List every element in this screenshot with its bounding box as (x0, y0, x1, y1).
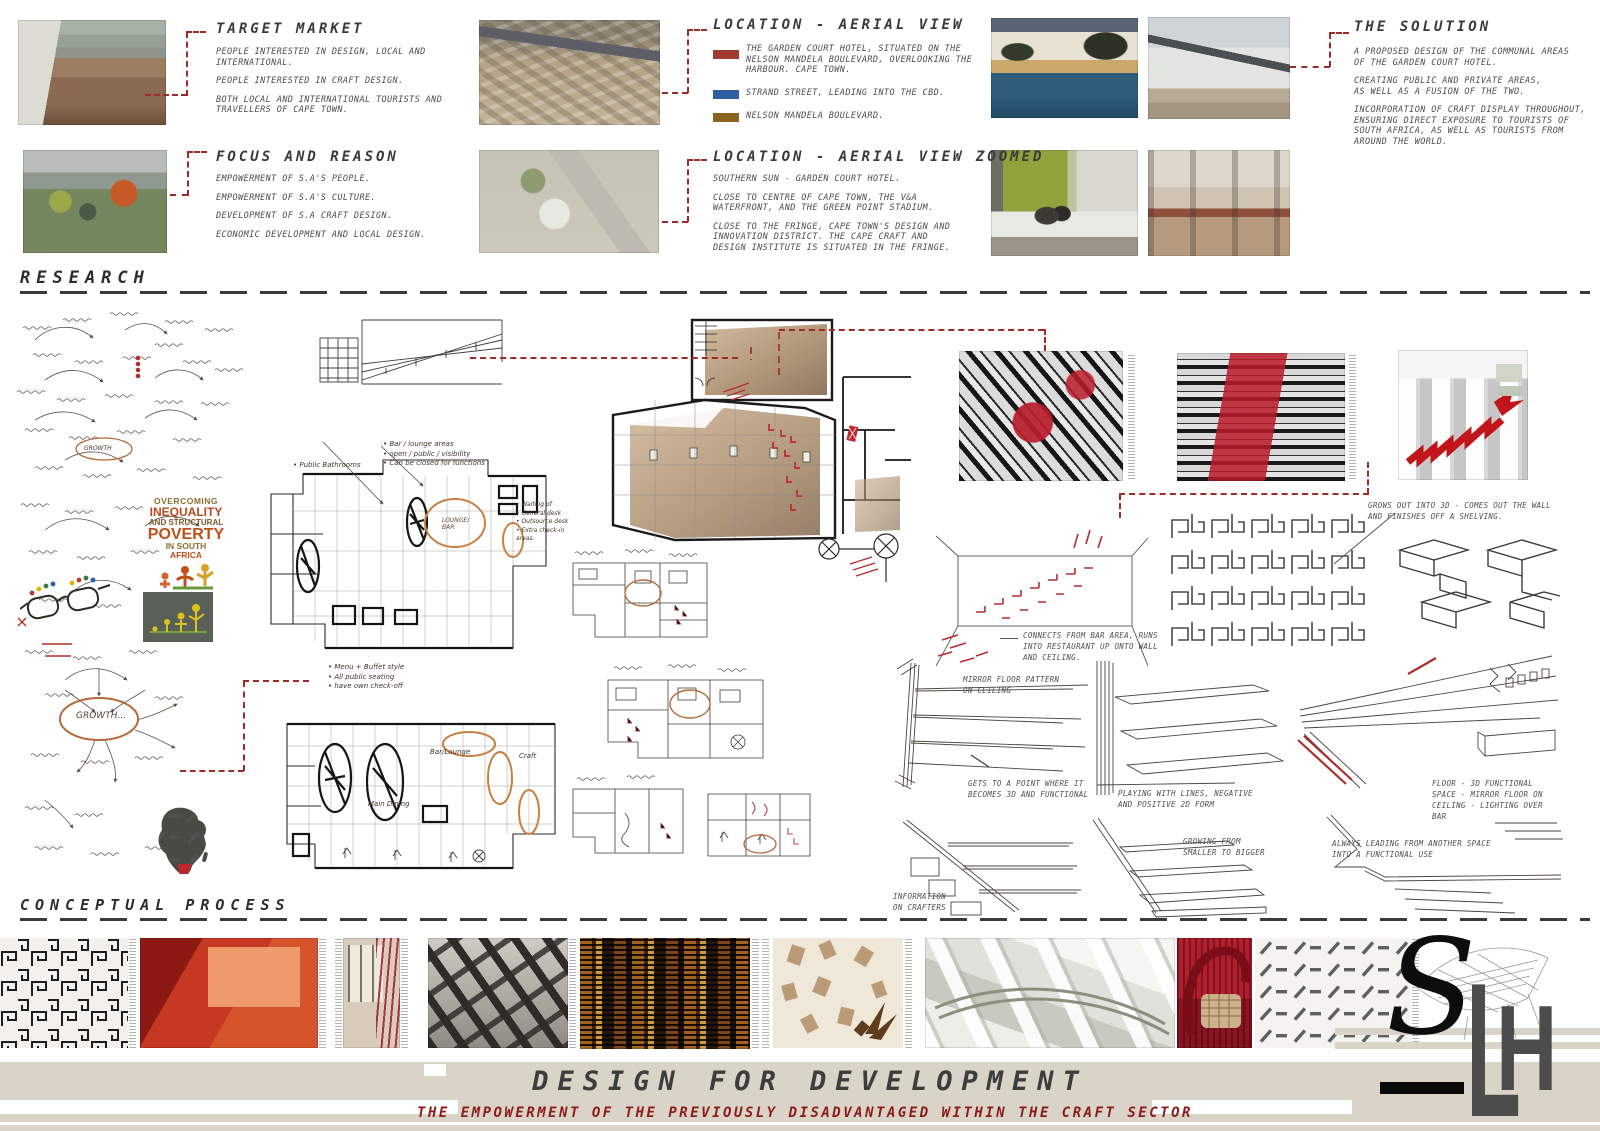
growth-bubble-small: GROWTH (84, 444, 112, 454)
presentation-board: TARGET MARKET PEOPLE INTERESTED IN DESIG… (0, 0, 1600, 1131)
label-lounge-bar: LOUNGE/BAR (442, 517, 469, 531)
poster-line6: AFRICA (136, 551, 236, 560)
note-menu-buffet: • Menu + Buffet style• All public seatin… (328, 663, 404, 692)
sketch-always-leading (1265, 815, 1565, 920)
connector-dash (1044, 329, 1046, 351)
connector-dash (180, 770, 244, 772)
connector-dash (687, 30, 689, 93)
connector-dash (1367, 462, 1369, 494)
legend-swatch-boulevard (713, 113, 739, 122)
board-title: DESIGN FOR DEVELOPMENT (430, 1068, 1190, 1095)
target-market-title: TARGET MARKET (216, 22, 365, 36)
floor-plan-sketch-2 (273, 686, 571, 878)
sketch-growing (1078, 815, 1268, 920)
connector-dash (1119, 494, 1121, 518)
photo-aloe-crafters (23, 150, 167, 253)
strip-wood-texture (580, 938, 750, 1049)
legend-text-hotel: THE GARDEN COURT HOTEL, SITUATED ON THEN… (746, 44, 972, 76)
focus-reason-text: EMPOWERMENT OF S.A'S PEOPLE.EMPOWERMENT … (216, 174, 426, 240)
connector-dash (687, 29, 707, 31)
note-growing: GROWING FROMSMALLER TO BIGGER (1183, 836, 1265, 858)
note-info-crafters: INFORMATIONON CRAFTERS (893, 891, 946, 913)
connector-dash (687, 160, 689, 222)
solution-title: THE SOLUTION (1354, 20, 1491, 34)
connector-dash (186, 32, 188, 96)
location-zoomed-text: SOUTHERN SUN - GARDEN COURT HOTEL.CLOSE … (713, 174, 950, 253)
conceptual-heading: CONCEPTUAL PROCESS (20, 898, 291, 913)
board-subtitle: THE EMPOWERMENT OF THE PREVIOUSLY DISADV… (330, 1106, 1280, 1120)
craft-glasses-image (20, 575, 112, 630)
legend-swatch-hotel (713, 50, 739, 59)
legend-swatch-strand (713, 90, 739, 99)
study-plan-b (598, 658, 773, 773)
citation-text (905, 938, 912, 1048)
connector-dash (662, 221, 688, 223)
connector-dash (186, 31, 206, 33)
note-gets-point: GETS TO A POINT WHERE ITBECOMES 3D AND F… (968, 778, 1088, 800)
image-3d-maze-arrow (1398, 350, 1528, 480)
connector-dash (187, 151, 207, 153)
poverty-poster: OVERCOMING INEQUALITY AND STRUCTURAL POV… (136, 497, 236, 595)
solution-text: A PROPOSED DESIGN OF THE COMMUNAL AREASO… (1354, 47, 1586, 147)
connector-dash (170, 194, 188, 196)
strip-red-threads-window (343, 938, 400, 1048)
citation-text (752, 938, 759, 1048)
note-mirror-floor: MIRROR FLOOR PATTERNON CEILING (963, 674, 1059, 696)
label-bar-lounge: Bar/Lounge (430, 748, 470, 758)
note-grows-out: GROWS OUT INTO 3D - COMES OUT THE WALLAN… (1368, 500, 1551, 522)
target-market-text: PEOPLE INTERESTED IN DESIGN, LOCAL ANDIN… (216, 47, 442, 116)
strip-red-geometric (140, 938, 318, 1048)
note-always-leading: ALWAYS LEADING FROM ANOTHER SPACEINTO A … (1332, 838, 1491, 860)
note-bar-lounge: • Bar / lounge areas• open / public / vi… (383, 440, 485, 469)
strip-red-fringe-chair (1177, 938, 1252, 1048)
image-circuitboard-1 (959, 351, 1123, 481)
poster-line2: INEQUALITY (136, 506, 236, 518)
strip-maze-pattern (0, 938, 128, 1048)
label-craft: Craft (519, 752, 536, 762)
section-sketch (316, 310, 506, 392)
research-underline (20, 291, 1590, 294)
legend-text-boulevard: NELSON MANDELA BOULEVARD. (746, 111, 884, 122)
connector-dash (662, 92, 688, 94)
connector-dash (243, 680, 309, 682)
label-main-dining: Main Dining (368, 800, 410, 810)
photo-hotel-restaurant (1148, 150, 1290, 256)
connector-dash (470, 357, 738, 359)
location-aerial-title: LOCATION - AERIAL VIEW (713, 18, 964, 32)
connector-dash (1119, 493, 1369, 495)
focus-reason-title: FOCUS AND REASON (216, 150, 399, 164)
citation-text (335, 938, 342, 1048)
connector-dash (243, 681, 245, 771)
photo-hotel-reception (991, 150, 1138, 256)
connector-dash (1290, 66, 1330, 68)
note-public-bathrooms: • Public Bathrooms (293, 461, 361, 471)
strip-steel-structure (428, 938, 568, 1048)
logo-letter-h: H (1496, 988, 1557, 1110)
citation-text (1128, 353, 1135, 479)
strip-white-interior (925, 938, 1175, 1048)
image-circuitboard-2 (1177, 353, 1345, 481)
study-plan-c (565, 773, 690, 868)
logo-letter-s: S (1386, 922, 1476, 1054)
sketch-3d-shelves (1392, 532, 1562, 650)
note-playing-lines: PLAYING WITH LINES, NEGATIVEAND POSITIVE… (1118, 788, 1253, 810)
connector-dash (1329, 32, 1349, 34)
photo-hotel-building (1148, 17, 1290, 119)
citation-text (762, 938, 769, 1048)
poster-line4: POVERTY (136, 527, 236, 542)
citation-text (1349, 353, 1356, 479)
connector-dash (779, 329, 1044, 331)
photo-hotel-pool (991, 18, 1138, 118)
connector-dash (187, 152, 189, 196)
citation-text (319, 938, 326, 1048)
study-plan-a (565, 545, 715, 650)
logo-underscore-bar (1380, 1082, 1464, 1094)
africa-craft-map (148, 806, 212, 874)
pointer-line (1000, 638, 1018, 639)
citation-text (569, 938, 576, 1048)
connector-dash (687, 159, 707, 161)
connector-dash (145, 94, 187, 96)
sketch-playing-lines (1085, 655, 1285, 805)
photo-aerial-view (479, 20, 660, 125)
citation-text (129, 938, 136, 1048)
growth-bubble: GROWTH... (76, 712, 126, 722)
location-zoomed-title: LOCATION - AERIAL VIEW ZOOMED (713, 150, 1044, 164)
legend-text-strand: STRAND STREET, LEADING INTO THE CBD. (746, 88, 945, 99)
connector-dash (1329, 33, 1331, 67)
conceptual-underline (20, 918, 1590, 921)
growth-figures-image (143, 592, 213, 642)
footer-stripe-white (0, 1122, 1600, 1125)
photo-craft-market (18, 20, 166, 125)
study-plan-d (700, 780, 818, 870)
poster-figures (151, 560, 221, 590)
photo-aerial-view-zoomed (479, 150, 659, 253)
citation-text (401, 938, 408, 1048)
research-heading: RESEARCH (20, 270, 150, 287)
strip-scattered-diamonds (773, 938, 903, 1048)
